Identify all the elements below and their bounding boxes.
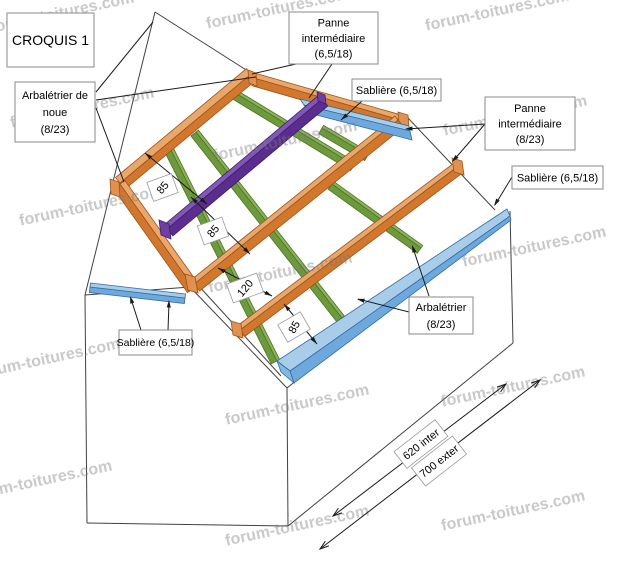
svg-text:(8/23): (8/23) xyxy=(516,134,545,146)
svg-text:CROQUIS 1: CROQUIS 1 xyxy=(12,32,89,48)
svg-text:Sablière (6,5/18): Sablière (6,5/18) xyxy=(117,337,195,349)
svg-text:Arbalétrier de: Arbalétrier de xyxy=(22,90,88,102)
svg-text:(6,5/18): (6,5/18) xyxy=(315,48,353,60)
svg-text:(8/23): (8/23) xyxy=(41,124,70,136)
svg-text:Arbalétrier: Arbalétrier xyxy=(416,302,467,314)
svg-text:Sablière (6,5/18): Sablière (6,5/18) xyxy=(517,172,598,184)
svg-text:Panne: Panne xyxy=(318,17,350,29)
svg-text:(8/23): (8/23) xyxy=(427,319,456,331)
svg-text:Sablière (6,5/18): Sablière (6,5/18) xyxy=(356,85,437,97)
svg-text:Panne: Panne xyxy=(514,103,546,115)
svg-text:noue: noue xyxy=(43,107,67,119)
svg-text:intermédiaire: intermédiaire xyxy=(498,118,562,130)
svg-text:intermédiaire: intermédiaire xyxy=(302,33,366,45)
